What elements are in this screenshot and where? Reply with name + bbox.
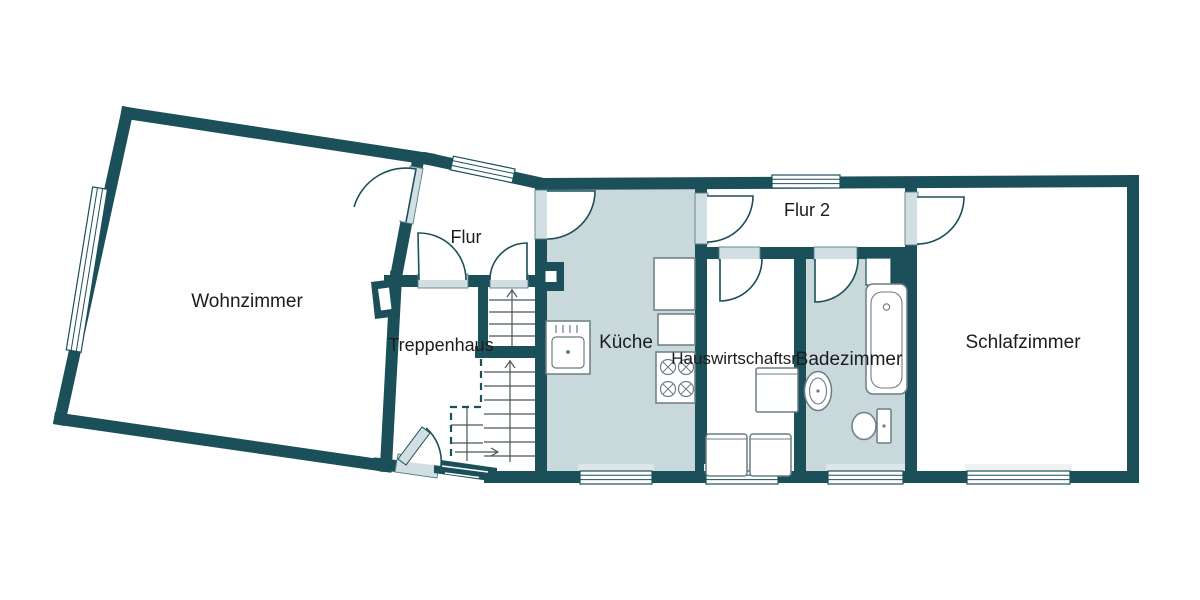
window-bad-icon	[826, 464, 905, 484]
label-badezimmer: Badezimmer	[796, 349, 903, 370]
sill-flur2-schlafzimmer	[905, 192, 918, 245]
vent-shaft-niche	[866, 258, 891, 285]
kitchen-sink-icon	[546, 321, 590, 374]
chimney-kueche-core	[546, 271, 557, 282]
door-wohnzimmer-flur-icon	[354, 168, 416, 222]
utility-fixtures	[706, 368, 798, 476]
floorplan-drawing: Wohnzimmer Flur Treppenhaus Küche Flur 2…	[0, 0, 1200, 600]
label-kueche: Küche	[599, 332, 653, 353]
label-flur: Flur	[451, 227, 482, 247]
stairs-upper-flight	[489, 289, 535, 346]
dryer-icon	[750, 434, 791, 476]
window-wohnzimmer-icon	[66, 187, 107, 352]
sill-kueche-flur2	[695, 193, 708, 244]
door-flur2-hwr-icon	[720, 259, 762, 301]
door-kueche-flur2-icon	[707, 196, 753, 242]
entrance-step	[434, 459, 497, 482]
bathroom-sink-icon	[805, 372, 832, 411]
refrigerator-icon	[654, 258, 695, 310]
stairs-icon	[451, 289, 536, 462]
label-wohnzimmer: Wohnzimmer	[191, 291, 303, 312]
wall-top-wohnzimmer	[127, 113, 429, 159]
floorplan-page: Wohnzimmer Flur Treppenhaus Küche Flur 2…	[0, 0, 1200, 600]
sill-flur-kueche	[535, 190, 548, 239]
window-flur-icon	[451, 156, 516, 183]
washer-icon	[706, 434, 747, 476]
label-hauswirtschaftsraum: Hauswirtschaftsr.	[671, 349, 800, 368]
window-schlafzimmer-icon	[965, 464, 1072, 484]
door-flur2-schlafzimmer-icon	[917, 197, 964, 244]
sill-flur2-bad	[814, 247, 857, 260]
wall-bottom-wohnzimmer	[60, 419, 386, 466]
stairs-lower-flight	[451, 360, 536, 462]
window-flur2-icon	[772, 175, 840, 188]
label-schlafzimmer: Schlafzimmer	[965, 332, 1081, 353]
bathtub-icon	[866, 284, 907, 394]
kitchen-counter-icon	[658, 314, 695, 345]
label-treppenhaus: Treppenhaus	[388, 335, 493, 355]
window-kueche-icon	[578, 464, 654, 484]
label-flur2: Flur 2	[784, 200, 830, 220]
door-flur-stairs-icon	[490, 243, 527, 280]
utility-appliance-icon	[756, 368, 798, 412]
stairs-cutline	[451, 359, 481, 461]
sill-flur2-hwr	[719, 247, 760, 260]
